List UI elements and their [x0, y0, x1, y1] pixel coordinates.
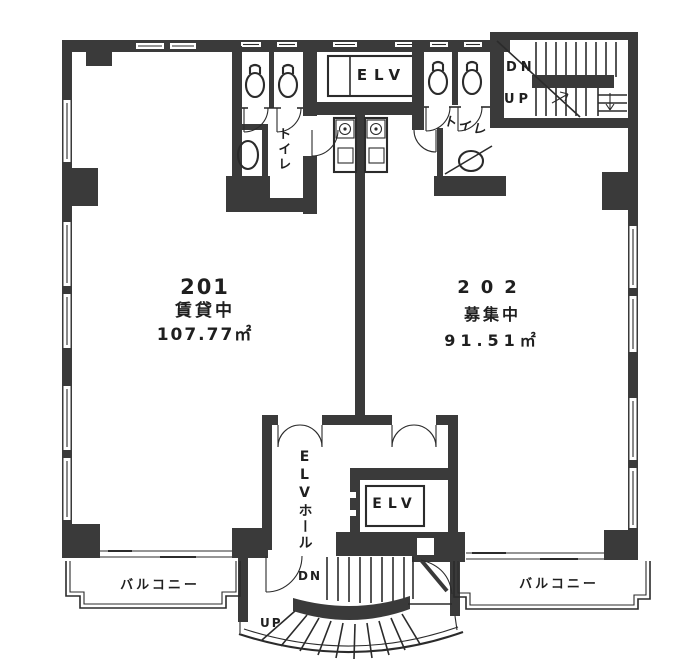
floor-plan: 201 賃貸中 107.77㎡ 202 募集中 91.51㎡ ELV ELV E…: [0, 0, 690, 664]
elevator-room-bottom: [336, 415, 465, 562]
elevator-room-top: [303, 56, 420, 115]
toilet-bowl-icon: [429, 62, 447, 94]
unit-202-area: 91.51㎡: [415, 331, 570, 351]
kitchenette-icon: [365, 118, 387, 172]
door-swing-icon: [414, 130, 436, 152]
toilet-bowl-icon: [279, 65, 297, 97]
double-door-icon: [392, 425, 436, 447]
unit-202-status: 募集中: [415, 305, 570, 325]
door-swing-icon: [421, 560, 452, 594]
elevator-bottom-label: ELV: [366, 496, 424, 514]
staircase-bottom: [238, 556, 463, 659]
unit-201-label: 201 賃貸中 107.77㎡: [125, 274, 285, 346]
toilet-left-label: トイレ: [274, 127, 290, 189]
stairs-bottom-up-label: UP: [260, 616, 283, 631]
floor-plan-svg: [0, 0, 690, 664]
balcony-left-label: バルコニー: [92, 578, 228, 594]
balcony-right-label: バルコニー: [486, 577, 632, 593]
unit-201-status: 賃貸中: [125, 301, 285, 322]
toilet-bowl-icon: [463, 62, 481, 94]
stairs-top-up-label: UP: [504, 92, 532, 108]
stairs-top-down-label: DN: [506, 60, 536, 76]
unit-202-label: 202 募集中 91.51㎡: [415, 277, 570, 351]
elevator-top-label: ELV: [348, 66, 416, 85]
stairs-bottom-down-label: DN: [298, 569, 322, 584]
unit-201-number: 201: [125, 274, 285, 300]
door-swing-icon: [266, 556, 302, 592]
kitchenette-icon: [334, 118, 356, 172]
toilet-bowl-icon: [246, 65, 264, 97]
double-door-icon: [278, 425, 322, 447]
elevator-hall-label: ELVホール: [295, 449, 313, 551]
stair-landing: [532, 75, 614, 88]
unit-202-number: 202: [415, 277, 570, 300]
unit-201-area: 107.77㎡: [125, 325, 285, 346]
